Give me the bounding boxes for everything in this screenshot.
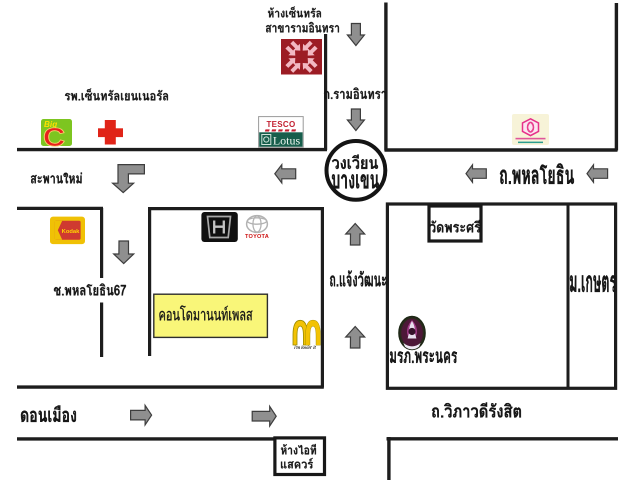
svg-text:Kodak: Kodak xyxy=(62,229,80,235)
svg-text:C: C xyxy=(43,123,65,152)
svg-text:TESCO: TESCO xyxy=(266,120,295,129)
svg-text:TOYOTA: TOYOTA xyxy=(245,234,269,240)
svg-text:Lotus: Lotus xyxy=(273,133,301,147)
svg-text:i'm lovin' it: i'm lovin' it xyxy=(294,345,316,350)
